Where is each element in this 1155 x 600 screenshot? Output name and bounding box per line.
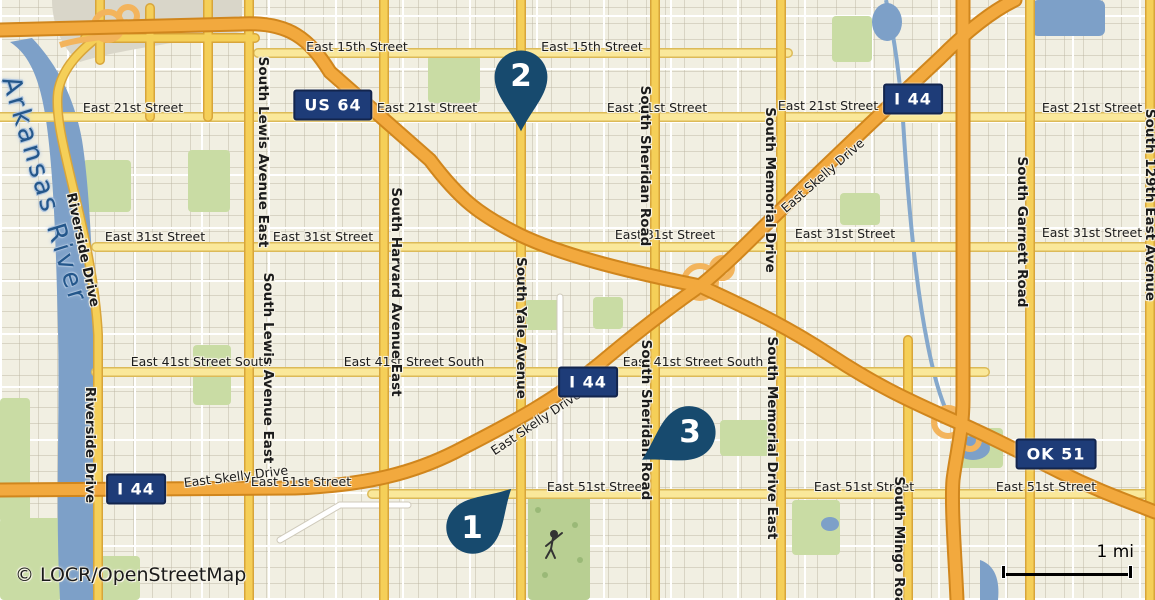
road-label: East 31st Street	[795, 228, 895, 241]
road-label: South Garnett Road	[1014, 156, 1028, 307]
road-label: East 31st Street	[1042, 227, 1142, 240]
route-shield: I 44	[883, 84, 943, 115]
scale-bar: 1 mi	[1002, 566, 1132, 580]
pin-number: 3	[679, 414, 701, 450]
route-shield: OK 51	[1016, 439, 1097, 470]
road-label: South 129th East Avenue	[1142, 109, 1155, 301]
road-label: South Harvard Avenue East	[388, 187, 402, 396]
route-shield: US 64	[293, 90, 372, 121]
lake	[1032, 0, 1105, 36]
road-label: East 51st Street	[996, 481, 1096, 494]
road-label: South Mingo Road	[891, 476, 905, 600]
map-pin-2[interactable]: 2	[488, 42, 554, 135]
map-pin-3[interactable]: 3	[657, 398, 723, 491]
road-label: South Memorial Drive East	[764, 337, 778, 540]
road-label: East 21st Street	[83, 102, 183, 115]
map-pin-1[interactable]: 1	[439, 494, 505, 587]
pin-number: 1	[461, 510, 483, 546]
road-label: East 31st Street	[273, 231, 373, 244]
road-label: East 21st Street	[377, 102, 477, 115]
road-label: South Lewis Avenue East	[260, 273, 274, 464]
road-label: East 31st Street	[105, 231, 205, 244]
scale-bar-line	[1002, 573, 1132, 576]
map-canvas[interactable]: East 15th StreetEast 15th StreetEast 21s…	[0, 0, 1155, 600]
route-shield: I 44	[558, 367, 618, 398]
road-label: East 41st Street South	[344, 356, 485, 369]
road-label: East 21st Street	[607, 102, 707, 115]
road-label: South Yale Avenue	[513, 257, 527, 399]
scale-bar-label: 1 mi	[1096, 542, 1134, 562]
road-label: East 15th Street	[306, 41, 408, 54]
road-label: East 21st Street	[1042, 102, 1142, 115]
pin-number: 2	[510, 58, 532, 94]
road-label: East 31st Street	[615, 229, 715, 242]
attribution: © LOCR/OpenStreetMap	[15, 564, 246, 586]
map-base-layer	[0, 0, 1155, 600]
road-label: East 15th Street	[541, 41, 643, 54]
scale-bar-tick-right	[1129, 566, 1132, 578]
road-label: Riverside Drive	[82, 387, 96, 503]
road-label: South Sheridan Road	[637, 86, 651, 247]
road-label: South Memorial Drive	[762, 107, 776, 272]
scale-bar-tick-left	[1002, 566, 1005, 578]
road-label: East 51st Street	[547, 481, 647, 494]
road-label: East 21st Street	[778, 100, 878, 113]
route-shield: I 44	[106, 474, 166, 505]
road-label: South Lewis Avenue East	[255, 57, 269, 248]
road-label: East 41st Street South	[131, 356, 272, 369]
